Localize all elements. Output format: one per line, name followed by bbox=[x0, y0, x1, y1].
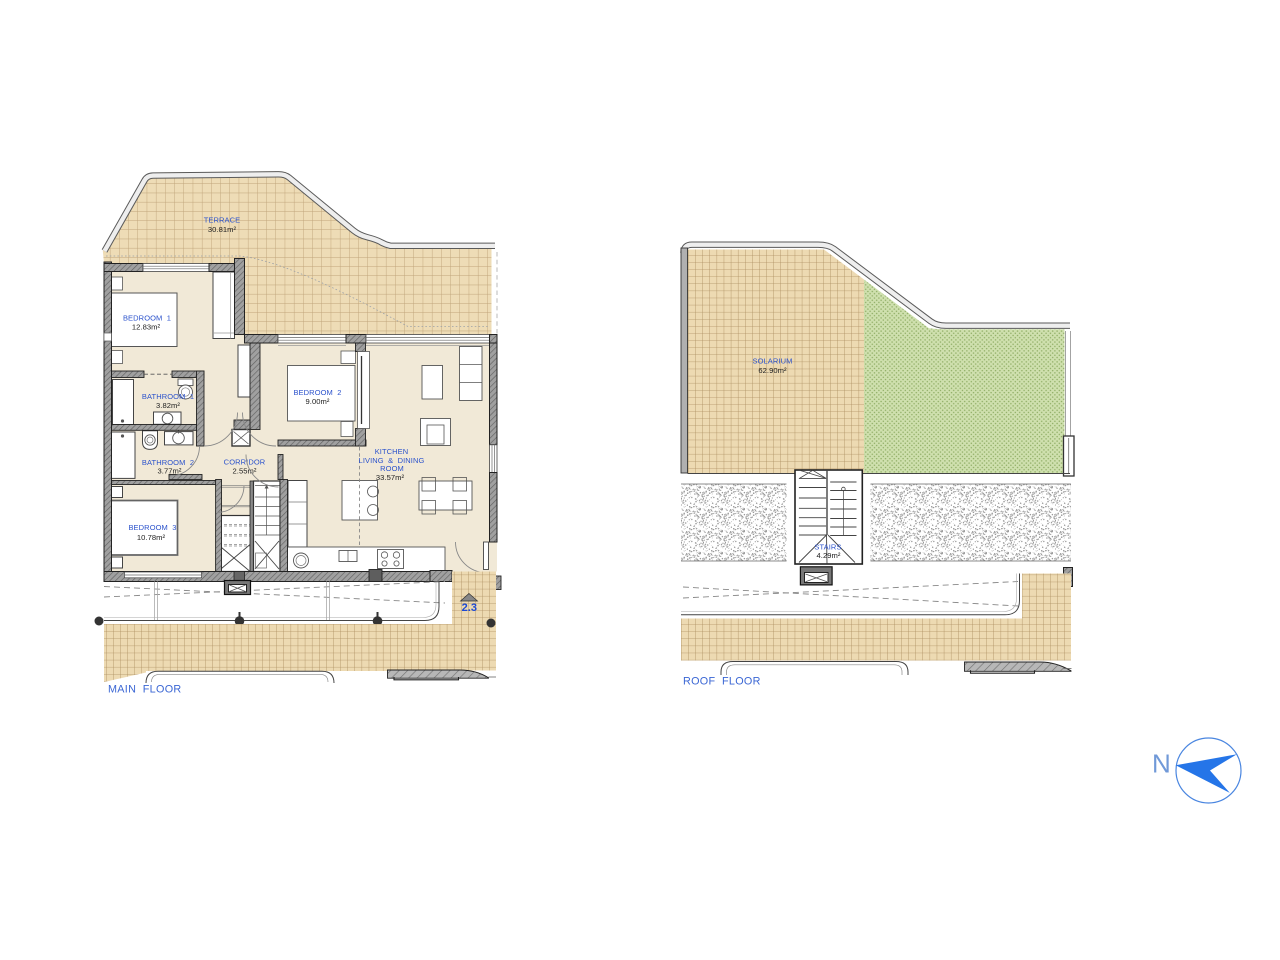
svg-text:12.83m²: 12.83m² bbox=[132, 323, 161, 332]
svg-text:MAIN FLOOR: MAIN FLOOR bbox=[108, 684, 182, 696]
svg-text:3.77m²: 3.77m² bbox=[158, 466, 182, 475]
svg-text:CORRIDOR: CORRIDOR bbox=[224, 458, 266, 467]
svg-text:BATHROOM 1: BATHROOM 1 bbox=[142, 392, 194, 401]
svg-text:SOLARIUM: SOLARIUM bbox=[753, 357, 793, 366]
svg-text:9.00m²: 9.00m² bbox=[306, 397, 330, 406]
svg-text:2.3: 2.3 bbox=[462, 602, 477, 614]
svg-text:2.55m²: 2.55m² bbox=[233, 466, 257, 475]
svg-text:BEDROOM 3: BEDROOM 3 bbox=[128, 523, 176, 532]
svg-text:ROOM: ROOM bbox=[380, 464, 404, 473]
svg-text:BEDROOM 2: BEDROOM 2 bbox=[293, 388, 341, 397]
svg-text:33.57m²: 33.57m² bbox=[376, 473, 405, 482]
svg-text:BEDROOM 1: BEDROOM 1 bbox=[123, 314, 171, 323]
svg-text:N: N bbox=[1152, 749, 1171, 779]
svg-text:3.82m²: 3.82m² bbox=[156, 401, 180, 410]
svg-text:ROOF FLOOR: ROOF FLOOR bbox=[683, 676, 761, 688]
svg-text:30.81m²: 30.81m² bbox=[208, 225, 237, 234]
svg-text:TERRACE: TERRACE bbox=[204, 216, 241, 225]
svg-text:KITCHEN: KITCHEN bbox=[375, 447, 409, 456]
svg-text:10.78m²: 10.78m² bbox=[137, 533, 166, 542]
svg-text:4.29m²: 4.29m² bbox=[817, 551, 841, 560]
svg-text:62.90m²: 62.90m² bbox=[758, 366, 787, 375]
